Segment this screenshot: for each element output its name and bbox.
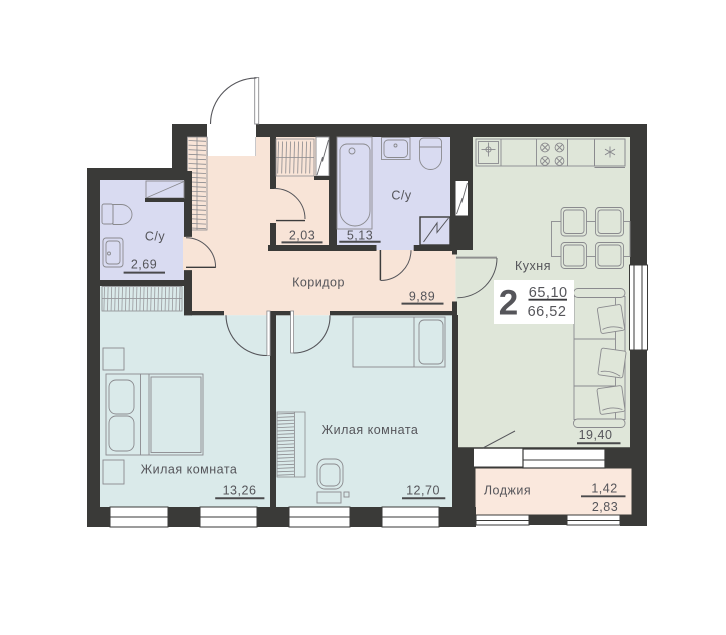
svg-text:19,40: 19,40 (579, 428, 613, 442)
svg-text:2,69: 2,69 (131, 258, 157, 272)
svg-text:9,89: 9,89 (409, 290, 435, 304)
svg-text:13,26: 13,26 (223, 484, 257, 498)
svg-text:1,42: 1,42 (591, 482, 617, 496)
svg-text:Коридор: Коридор (292, 276, 345, 290)
svg-text:2,03: 2,03 (289, 229, 315, 243)
svg-text:2,83: 2,83 (592, 500, 618, 514)
svg-text:Лоджия: Лоджия (484, 484, 531, 498)
svg-text:12,70: 12,70 (406, 484, 440, 498)
svg-text:5,13: 5,13 (347, 229, 373, 243)
svg-text:Кухня: Кухня (515, 259, 551, 273)
svg-text:66,52: 66,52 (528, 304, 567, 320)
svg-text:2: 2 (499, 284, 518, 323)
svg-text:С/у: С/у (145, 230, 166, 244)
svg-text:Жилая комната: Жилая комната (141, 463, 238, 477)
svg-text:С/у: С/у (391, 189, 412, 203)
svg-text:Жилая комната: Жилая комната (322, 423, 419, 437)
